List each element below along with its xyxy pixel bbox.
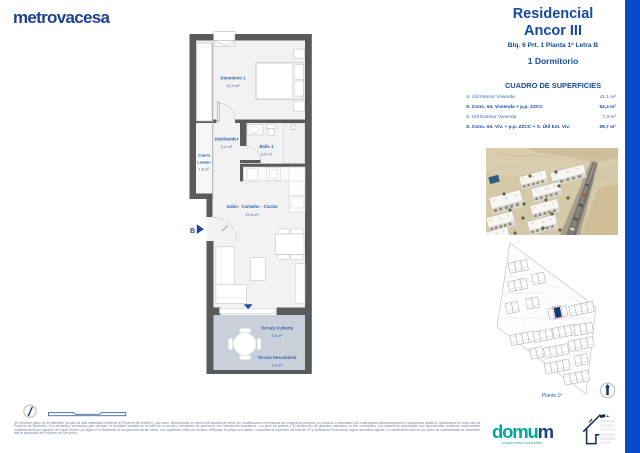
svg-text:B: B bbox=[190, 228, 195, 235]
svg-text:Distribuidor: Distribuidor bbox=[215, 137, 239, 142]
svg-text:2,4 m²: 2,4 m² bbox=[221, 144, 233, 149]
svg-text:Planta 1ª: Planta 1ª bbox=[542, 393, 562, 399]
svg-text:Dormitorio 1: Dormitorio 1 bbox=[221, 76, 247, 81]
svg-text:Terraza Descubierta: Terraza Descubierta bbox=[258, 355, 298, 360]
svg-text:Lavado: Lavado bbox=[197, 160, 211, 165]
svg-text:3,6 m²: 3,6 m² bbox=[271, 333, 283, 338]
svg-text:1,8 m²: 1,8 m² bbox=[199, 168, 210, 172]
svg-text:Baño 1: Baño 1 bbox=[260, 144, 275, 149]
svg-text:12,4 m²: 12,4 m² bbox=[226, 83, 240, 88]
svg-text:Terraza Cubierta: Terraza Cubierta bbox=[261, 326, 294, 331]
svg-text:19,6 m²: 19,6 m² bbox=[245, 212, 259, 217]
svg-text:3,4 m²: 3,4 m² bbox=[271, 363, 283, 368]
svg-text:Salón - Comedor - Cocina: Salón - Comedor - Cocina bbox=[226, 204, 278, 209]
svg-text:3,9 m²: 3,9 m² bbox=[261, 152, 273, 157]
svg-text:Cuarto: Cuarto bbox=[198, 153, 211, 158]
